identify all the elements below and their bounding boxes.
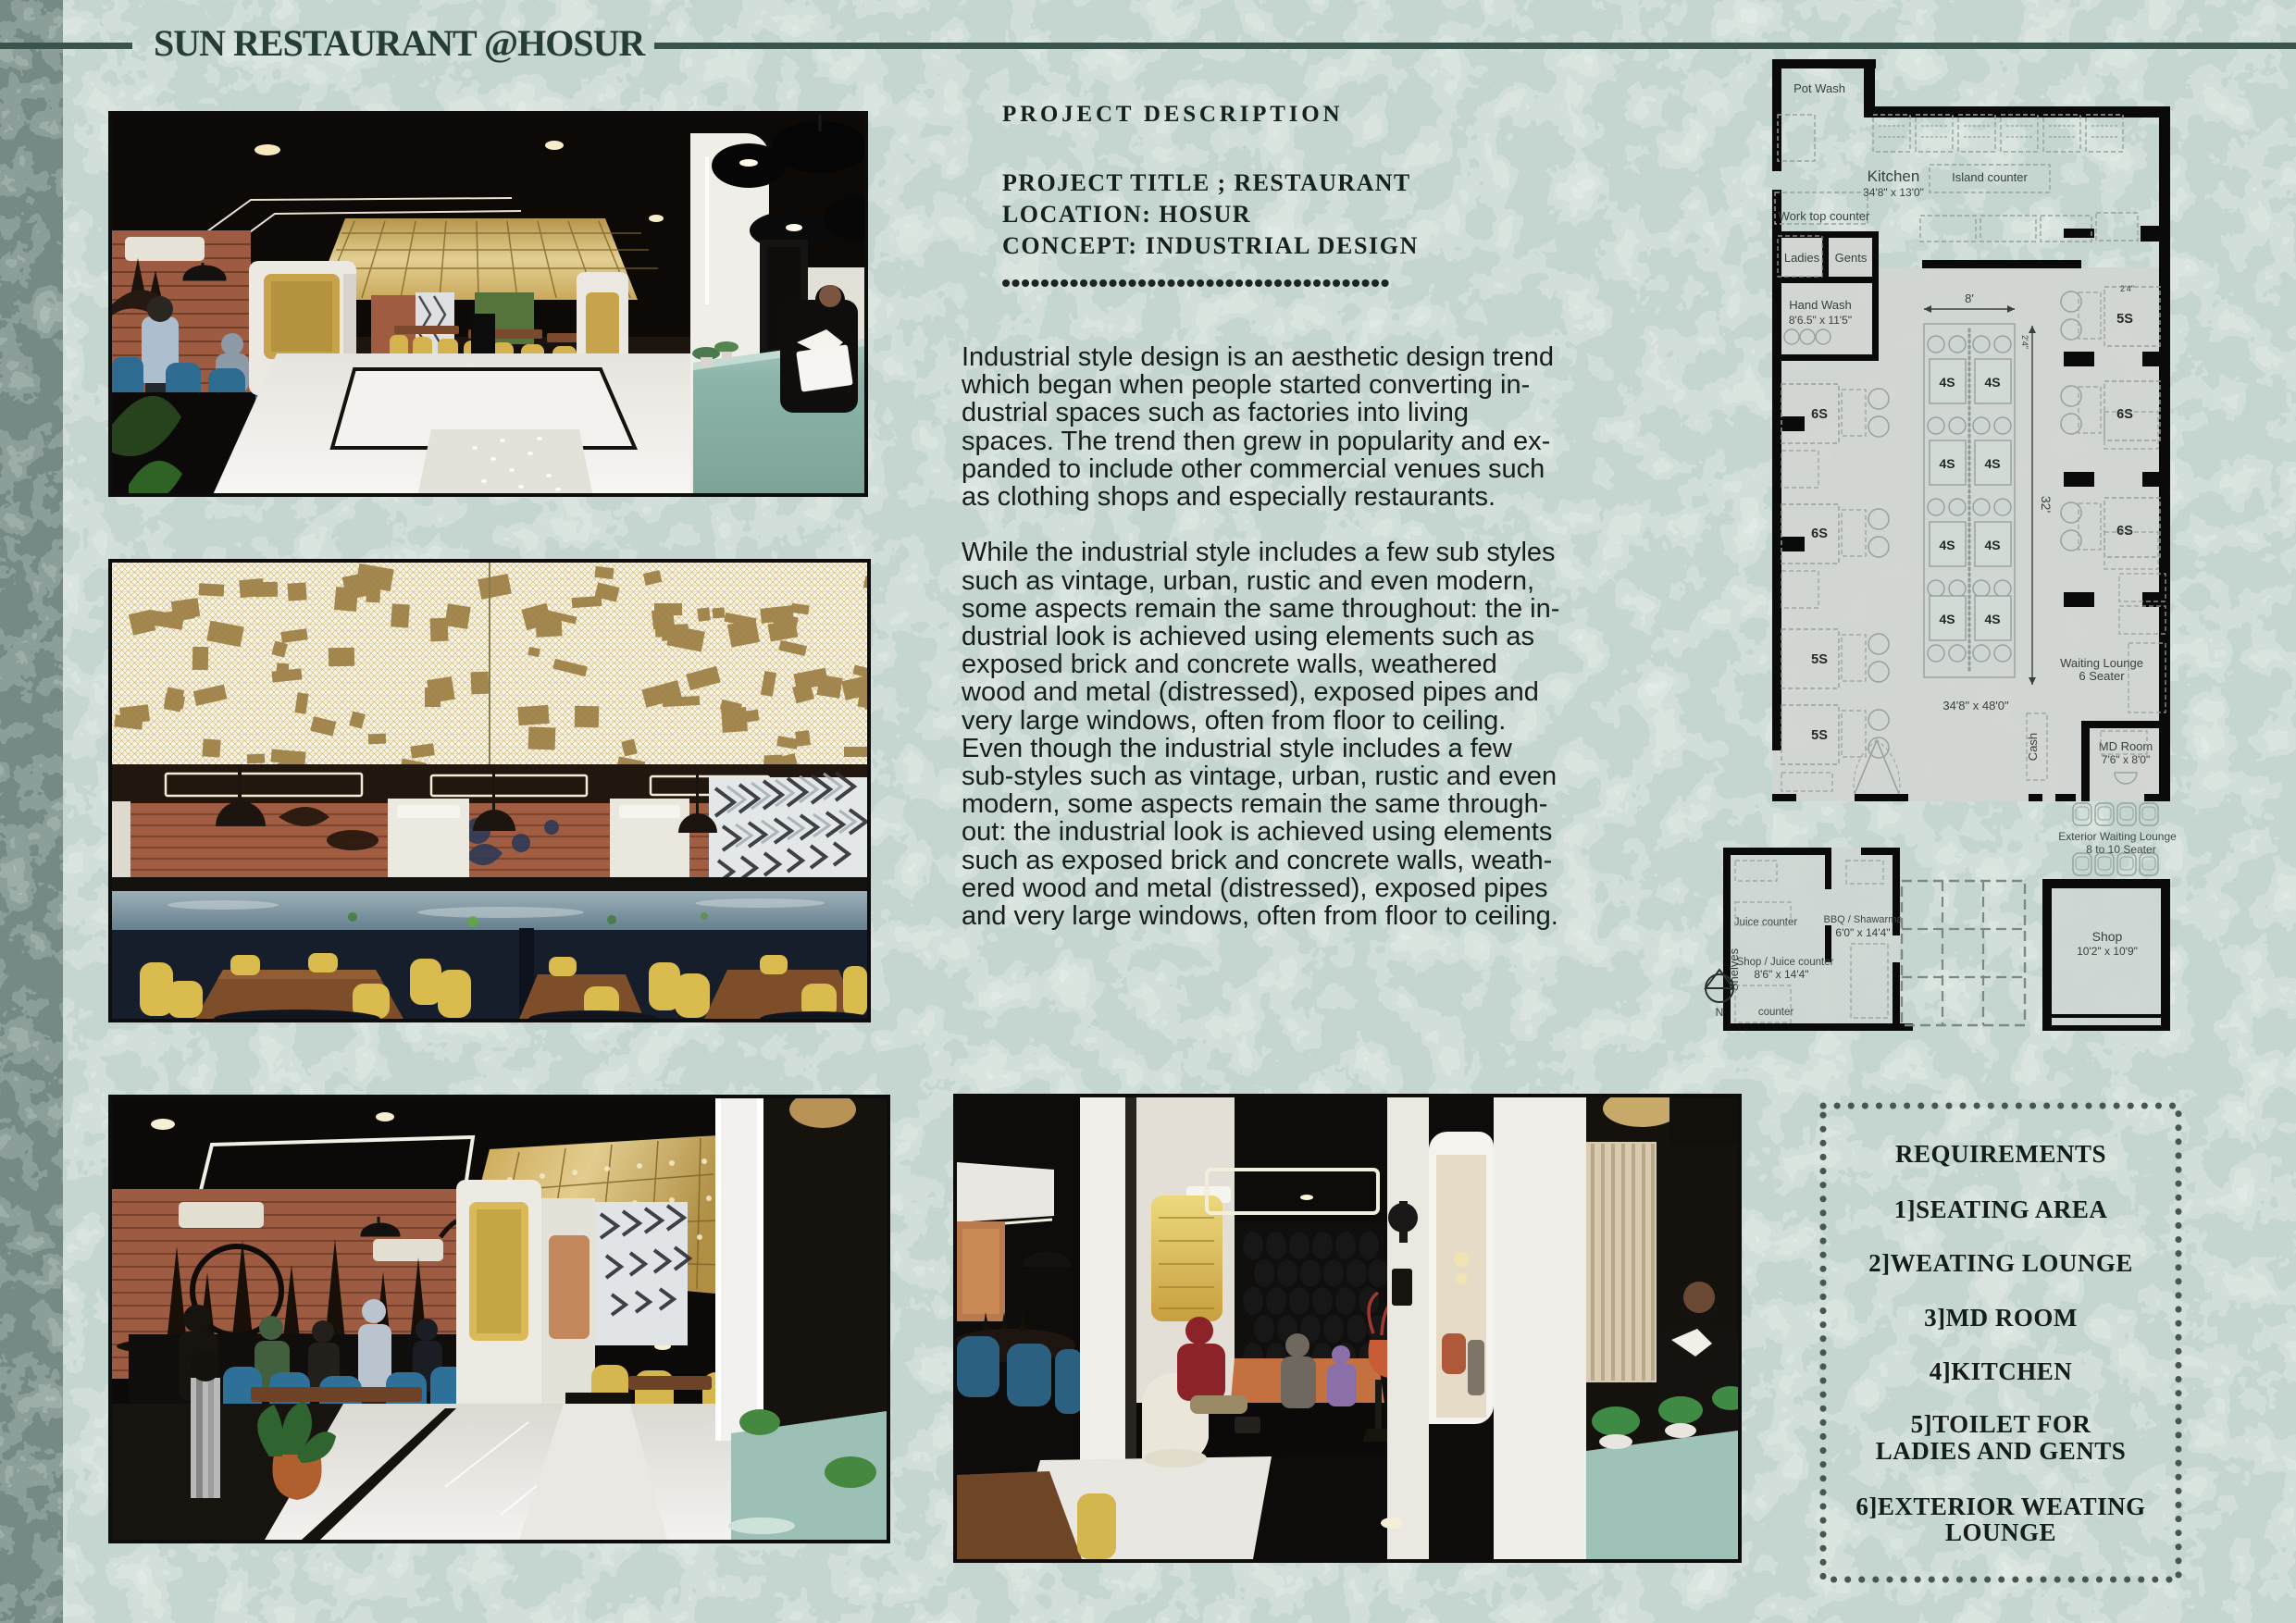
svg-text:4S: 4S xyxy=(1939,612,1955,626)
svg-text:6 Seater: 6 Seater xyxy=(2079,669,2125,683)
svg-text:Ladies: Ladies xyxy=(1784,251,1820,265)
svg-text:32': 32' xyxy=(2039,496,2054,513)
svg-text:2'4": 2'4" xyxy=(2020,335,2029,349)
svg-text:N: N xyxy=(1716,1006,1724,1019)
svg-text:BBQ / Shawarma: BBQ / Shawarma xyxy=(1824,914,1904,925)
svg-text:4S: 4S xyxy=(1984,456,2000,471)
svg-text:Juice counter: Juice counter xyxy=(1734,917,1798,928)
svg-text:5S: 5S xyxy=(1811,728,1828,743)
svg-text:counter: counter xyxy=(1758,1007,1794,1018)
svg-text:34'8" x 13'0": 34'8" x 13'0" xyxy=(1863,186,1924,199)
svg-text:6S: 6S xyxy=(1811,527,1828,541)
svg-text:Shop: Shop xyxy=(2092,929,2123,944)
svg-text:4S: 4S xyxy=(1939,538,1955,552)
svg-text:Island counter: Island counter xyxy=(1952,170,2028,184)
svg-text:6'0" x 14'4": 6'0" x 14'4" xyxy=(1835,926,1890,939)
svg-text:7'6" x 8'0": 7'6" x 8'0" xyxy=(2102,753,2150,766)
svg-text:Kitchen: Kitchen xyxy=(1868,167,1920,185)
svg-text:8': 8' xyxy=(1965,291,1974,305)
svg-text:5S: 5S xyxy=(2116,312,2133,327)
svg-text:Work top counter: Work top counter xyxy=(1779,209,1870,223)
svg-text:2'4": 2'4" xyxy=(2120,284,2134,293)
svg-text:5S: 5S xyxy=(1811,652,1828,667)
svg-text:Hand Wash: Hand Wash xyxy=(1789,298,1851,312)
svg-text:6S: 6S xyxy=(2116,524,2133,539)
svg-text:6S: 6S xyxy=(1811,407,1828,422)
svg-text:Waiting Lounge: Waiting Lounge xyxy=(2060,656,2143,670)
svg-text:Exterior Waiting Lounge: Exterior Waiting Lounge xyxy=(2058,830,2177,843)
svg-text:8'6" x 14'4": 8'6" x 14'4" xyxy=(1754,968,1808,981)
svg-text:4S: 4S xyxy=(1984,538,2000,552)
svg-text:Shop / Juice counter: Shop / Juice counter xyxy=(1737,957,1834,968)
svg-text:4S: 4S xyxy=(1984,375,2000,390)
svg-text:8'6.5" x 11'5": 8'6.5" x 11'5" xyxy=(1789,314,1852,327)
svg-text:8 to 10 Seater: 8 to 10 Seater xyxy=(2086,843,2155,856)
svg-text:6S: 6S xyxy=(2116,407,2133,422)
svg-text:4S: 4S xyxy=(1939,456,1955,471)
svg-text:4S: 4S xyxy=(1939,375,1955,390)
svg-text:Pot Wash: Pot Wash xyxy=(1793,81,1845,95)
svg-text:Cash: Cash xyxy=(2026,733,2040,761)
svg-text:10'2" x 10'9": 10'2" x 10'9" xyxy=(2077,945,2138,958)
svg-text:34'8" x 48'0": 34'8" x 48'0" xyxy=(1942,699,2009,712)
svg-text:MD Room: MD Room xyxy=(2099,739,2153,753)
svg-text:4S: 4S xyxy=(1984,612,2000,626)
svg-text:Gents: Gents xyxy=(1835,251,1868,265)
